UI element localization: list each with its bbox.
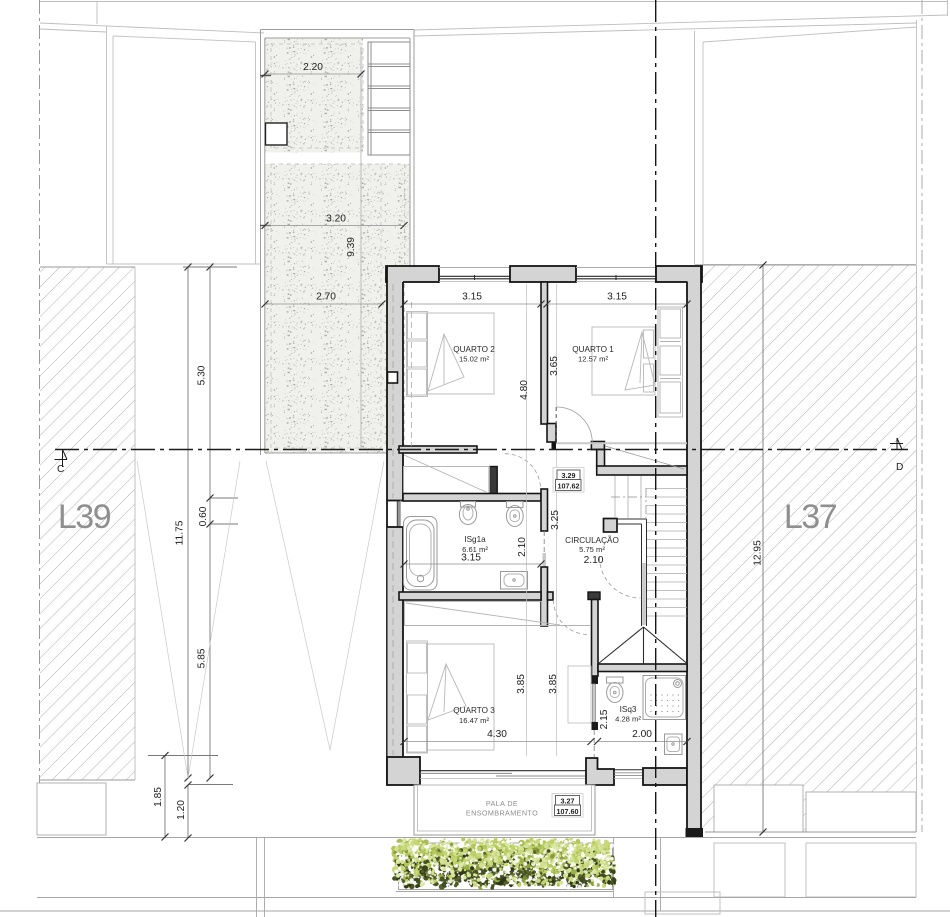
svg-text:C: C xyxy=(57,464,64,475)
svg-text:12.57 m²: 12.57 m² xyxy=(578,355,608,364)
svg-text:1.85: 1.85 xyxy=(153,787,164,807)
svg-text:107.62: 107.62 xyxy=(558,482,580,491)
svg-text:11.75: 11.75 xyxy=(175,520,186,545)
svg-text:3.29: 3.29 xyxy=(562,471,576,480)
svg-text:ISg1a: ISg1a xyxy=(464,535,486,544)
svg-text:4.30: 4.30 xyxy=(487,729,507,740)
svg-text:16.47 m²: 16.47 m² xyxy=(459,716,489,725)
svg-text:QUARTO 2: QUARTO 2 xyxy=(453,345,495,354)
svg-text:2.20: 2.20 xyxy=(303,62,323,73)
svg-text:L39: L39 xyxy=(58,498,111,536)
svg-text:ENSOMBRAMENTO: ENSOMBRAMENTO xyxy=(466,809,538,818)
svg-text:3.85: 3.85 xyxy=(548,674,559,694)
svg-text:D: D xyxy=(896,462,903,473)
svg-text:5.85: 5.85 xyxy=(197,648,208,668)
svg-text:1.20: 1.20 xyxy=(176,800,187,820)
svg-text:107.60: 107.60 xyxy=(557,807,579,816)
svg-text:2.00: 2.00 xyxy=(632,729,652,740)
svg-text:5.30: 5.30 xyxy=(197,365,208,385)
svg-text:2.15: 2.15 xyxy=(599,709,610,729)
svg-text:3.27: 3.27 xyxy=(561,797,575,806)
svg-text:2.70: 2.70 xyxy=(316,292,336,303)
svg-text:15.02 m²: 15.02 m² xyxy=(459,355,489,364)
svg-text:PALA DE: PALA DE xyxy=(486,799,518,808)
svg-text:3.15: 3.15 xyxy=(607,292,627,303)
svg-text:3.25: 3.25 xyxy=(550,510,561,530)
svg-text:3.15: 3.15 xyxy=(462,292,482,303)
svg-text:12.95: 12.95 xyxy=(753,540,764,566)
svg-text:ISq3: ISq3 xyxy=(620,705,637,714)
svg-text:0.60: 0.60 xyxy=(198,506,209,526)
svg-text:2.10: 2.10 xyxy=(517,537,528,557)
svg-text:4.28 m²: 4.28 m² xyxy=(615,715,641,724)
svg-text:3.20: 3.20 xyxy=(326,214,346,225)
svg-text:QUARTO 1: QUARTO 1 xyxy=(572,345,614,354)
svg-text:3.85: 3.85 xyxy=(516,674,527,694)
svg-text:2.10: 2.10 xyxy=(584,555,604,566)
svg-text:5.75 m²: 5.75 m² xyxy=(579,545,605,554)
svg-text:9.39: 9.39 xyxy=(346,237,357,257)
svg-text:CIRCULAÇÃO: CIRCULAÇÃO xyxy=(565,535,619,545)
svg-text:L37: L37 xyxy=(784,498,837,536)
svg-text:3.65: 3.65 xyxy=(549,356,560,376)
svg-text:4.80: 4.80 xyxy=(519,380,530,400)
svg-text:QUARTO 3: QUARTO 3 xyxy=(453,706,495,715)
svg-text:3.15: 3.15 xyxy=(461,553,481,564)
